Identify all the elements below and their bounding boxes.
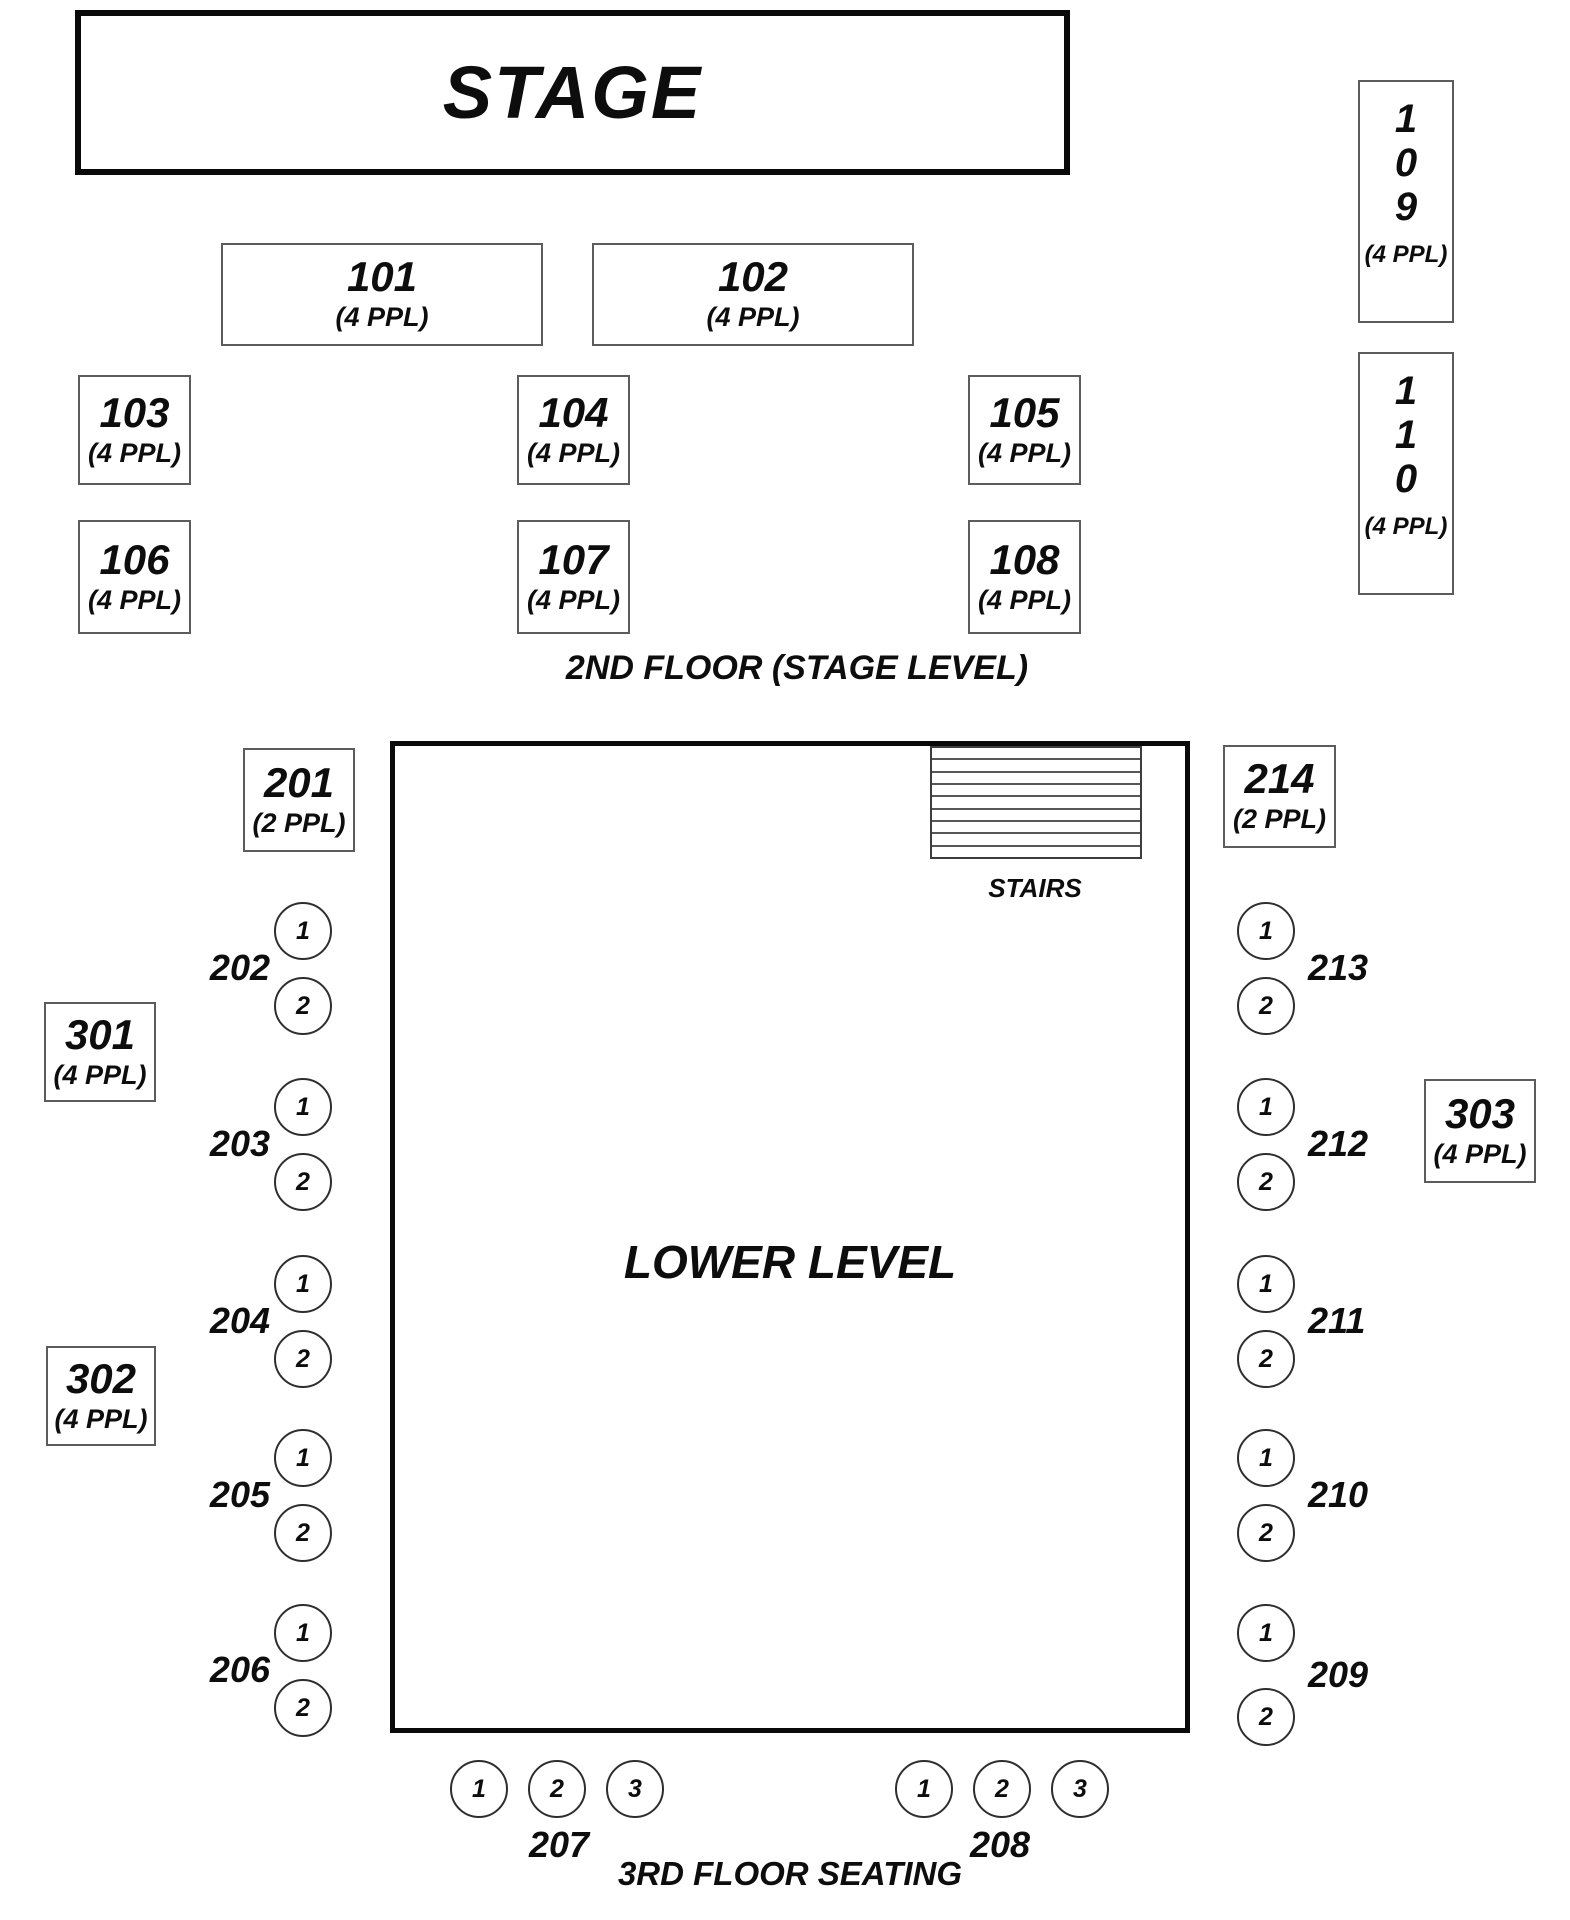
- table-number: 201: [264, 759, 334, 806]
- seat-group-label-205: 205: [160, 1468, 270, 1522]
- table-101[interactable]: 101 (4 PPL): [221, 243, 543, 346]
- seat-group-label-206: 206: [160, 1643, 270, 1697]
- seat-212-1[interactable]: 1: [1237, 1078, 1295, 1136]
- table-number: 104: [538, 389, 608, 436]
- table-106[interactable]: 106 (4 PPL): [78, 520, 191, 634]
- seat-group-label-210: 210: [1308, 1468, 1428, 1522]
- table-capacity: (4 PPL): [1365, 239, 1448, 270]
- table-201[interactable]: 201 (2 PPL): [243, 748, 355, 852]
- table-capacity: (4 PPL): [1365, 511, 1448, 542]
- table-capacity: (4 PPL): [88, 436, 181, 471]
- table-number: 214: [1244, 755, 1314, 802]
- table-104[interactable]: 104 (4 PPL): [517, 375, 630, 485]
- seat-group-label-204: 204: [160, 1294, 270, 1348]
- stairs-label: STAIRS: [885, 868, 1185, 908]
- table-capacity: (2 PPL): [252, 806, 345, 841]
- table-capacity: (4 PPL): [335, 300, 428, 335]
- stair-step: [932, 783, 1140, 795]
- table-number: 101: [347, 253, 417, 300]
- table-capacity: (4 PPL): [53, 1058, 146, 1093]
- seat-211-1[interactable]: 1: [1237, 1255, 1295, 1313]
- seat-206-1[interactable]: 1: [274, 1604, 332, 1662]
- seat-209-2[interactable]: 2: [1237, 1688, 1295, 1746]
- seat-213-1[interactable]: 1: [1237, 902, 1295, 960]
- seat-207-2[interactable]: 2: [528, 1760, 586, 1818]
- table-capacity: (4 PPL): [1433, 1137, 1526, 1172]
- table-number: 303: [1445, 1090, 1515, 1137]
- seat-202-2[interactable]: 2: [274, 977, 332, 1035]
- table-105[interactable]: 105 (4 PPL): [968, 375, 1081, 485]
- stair-step: [932, 845, 1140, 857]
- seat-208-3[interactable]: 3: [1051, 1760, 1109, 1818]
- table-109[interactable]: 109 (4 PPL): [1358, 80, 1454, 323]
- table-number: 106: [99, 536, 169, 583]
- table-number: 105: [989, 389, 1059, 436]
- seat-206-2[interactable]: 2: [274, 1679, 332, 1737]
- seat-203-2[interactable]: 2: [274, 1153, 332, 1211]
- table-capacity: (4 PPL): [54, 1402, 147, 1437]
- seat-204-2[interactable]: 2: [274, 1330, 332, 1388]
- seat-group-label-203: 203: [160, 1117, 270, 1171]
- stair-step: [932, 748, 1140, 758]
- stage-label: STAGE: [443, 50, 702, 135]
- stage-box: STAGE: [75, 10, 1070, 175]
- stair-step: [932, 808, 1140, 820]
- table-number: 302: [66, 1355, 136, 1402]
- seat-203-1[interactable]: 1: [274, 1078, 332, 1136]
- table-number: 103: [99, 389, 169, 436]
- seat-205-2[interactable]: 2: [274, 1504, 332, 1562]
- lower-level-label: LOWER LEVEL: [490, 1232, 1090, 1292]
- seat-213-2[interactable]: 2: [1237, 977, 1295, 1035]
- seat-207-3[interactable]: 3: [606, 1760, 664, 1818]
- table-301[interactable]: 301 (4 PPL): [44, 1002, 156, 1102]
- seat-group-label-213: 213: [1308, 941, 1428, 995]
- table-capacity: (4 PPL): [978, 583, 1071, 618]
- stair-step: [932, 820, 1140, 832]
- floor3-caption: 3RD FLOOR SEATING: [490, 1852, 1090, 1896]
- table-110[interactable]: 110 (4 PPL): [1358, 352, 1454, 595]
- seat-205-1[interactable]: 1: [274, 1429, 332, 1487]
- seat-212-2[interactable]: 2: [1237, 1153, 1295, 1211]
- floor2-caption: 2ND FLOOR (STAGE LEVEL): [447, 646, 1147, 690]
- table-302[interactable]: 302 (4 PPL): [46, 1346, 156, 1446]
- seat-204-1[interactable]: 1: [274, 1255, 332, 1313]
- table-capacity: (2 PPL): [1233, 802, 1326, 837]
- table-108[interactable]: 108 (4 PPL): [968, 520, 1081, 634]
- table-number: 110: [1395, 369, 1417, 501]
- table-303[interactable]: 303 (4 PPL): [1424, 1079, 1536, 1183]
- stair-step: [932, 795, 1140, 807]
- table-capacity: (4 PPL): [527, 583, 620, 618]
- seat-group-label-209: 209: [1308, 1648, 1428, 1702]
- table-number: 107: [538, 536, 608, 583]
- stairs: [930, 746, 1142, 859]
- table-214[interactable]: 214 (2 PPL): [1223, 745, 1336, 848]
- seat-group-label-212: 212: [1308, 1117, 1428, 1171]
- table-number: 109: [1395, 97, 1417, 229]
- stair-step: [932, 832, 1140, 844]
- stair-step: [932, 758, 1140, 770]
- table-103[interactable]: 103 (4 PPL): [78, 375, 191, 485]
- table-capacity: (4 PPL): [978, 436, 1071, 471]
- seat-202-1[interactable]: 1: [274, 902, 332, 960]
- seat-209-1[interactable]: 1: [1237, 1604, 1295, 1662]
- table-number: 108: [989, 536, 1059, 583]
- table-107[interactable]: 107 (4 PPL): [517, 520, 630, 634]
- table-102[interactable]: 102 (4 PPL): [592, 243, 914, 346]
- seat-210-1[interactable]: 1: [1237, 1429, 1295, 1487]
- seat-207-1[interactable]: 1: [450, 1760, 508, 1818]
- seat-208-1[interactable]: 1: [895, 1760, 953, 1818]
- seating-chart: STAGE 101 (4 PPL) 102 (4 PPL) 103 (4 PPL…: [0, 0, 1570, 1920]
- table-number: 102: [718, 253, 788, 300]
- seat-211-2[interactable]: 2: [1237, 1330, 1295, 1388]
- seat-group-label-202: 202: [160, 941, 270, 995]
- table-capacity: (4 PPL): [88, 583, 181, 618]
- table-capacity: (4 PPL): [706, 300, 799, 335]
- table-capacity: (4 PPL): [527, 436, 620, 471]
- table-number: 301: [65, 1011, 135, 1058]
- seat-group-label-211: 211: [1308, 1294, 1428, 1348]
- seat-210-2[interactable]: 2: [1237, 1504, 1295, 1562]
- stair-step: [932, 771, 1140, 783]
- seat-208-2[interactable]: 2: [973, 1760, 1031, 1818]
